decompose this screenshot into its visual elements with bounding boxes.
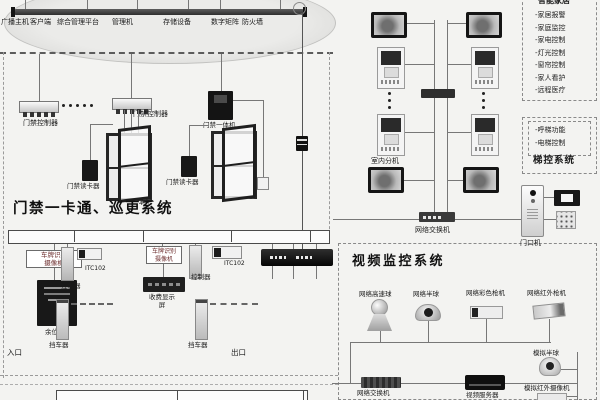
color-box-camera [470, 306, 503, 319]
ticket-controller-device [61, 247, 74, 281]
bus-label-management-platform: 综合管理平台 [57, 18, 99, 26]
bus-label-storage: 存储设备 [163, 18, 191, 26]
connector-line [405, 64, 434, 65]
access-controller-device [19, 101, 59, 113]
card-reader-device [82, 160, 98, 181]
bus-label-broadcast-host: 广播主机 [1, 18, 29, 26]
door-station-label: 门口机 [520, 239, 541, 247]
video-server-label: 视频服务器 [466, 392, 499, 399]
bus-loop-connector [293, 2, 306, 15]
bus-drop-line [25, 0, 26, 9]
indoor-monitor [368, 167, 404, 193]
video-section-title: 视频监控系统 [352, 255, 445, 270]
intercom-module-device [554, 190, 580, 206]
elevator-item: 呼梯功能 [535, 125, 566, 135]
camera-model-label: ITC102 [224, 261, 245, 268]
connector-line [90, 124, 113, 125]
analog-ir-label: 模拟红外摄像机 [524, 385, 570, 392]
smart-home-title: 智能家居 [538, 0, 570, 5]
indoor-monitor [371, 12, 407, 38]
floor-switch-device [421, 89, 455, 98]
parking-canopy-strip [8, 230, 330, 244]
connector-line [272, 266, 273, 279]
barrier-gate-device [56, 299, 69, 340]
access-door-open-sash [118, 125, 151, 203]
connector-line [448, 23, 466, 24]
indoor-monitor [463, 167, 499, 193]
elevator-item: 电梯控制 [535, 138, 566, 148]
card-reader-label: 门禁读卡器 [166, 179, 199, 186]
camera-label-ir-box: 网络红外枪机 [527, 290, 566, 297]
barrier-arm [71, 303, 113, 305]
camera-label-mini-dome: 网络半球 [413, 291, 439, 298]
camera-model-label: ITC102 [85, 266, 106, 273]
section-divider [0, 375, 338, 376]
trunk-junction-node [296, 136, 308, 151]
bottom-strip [56, 390, 308, 400]
indoor-videophone [377, 47, 405, 89]
ellipsis-dots [482, 92, 485, 109]
barrier-arm [210, 303, 258, 305]
connector-line [577, 352, 578, 400]
connector-line [448, 180, 463, 181]
smart-home-item: 家人看护 [535, 73, 566, 83]
bus-drop-line [137, 0, 138, 9]
fee-display-device [143, 277, 185, 292]
connector-line [544, 197, 554, 198]
bus-end-cap-left [11, 7, 15, 17]
smart-home-item: 家庭监控 [535, 23, 566, 33]
speed-dome-camera [371, 299, 388, 316]
camera-bus-line [350, 342, 551, 343]
connector-line [293, 266, 294, 279]
section-divider [0, 384, 338, 385]
bus-drop-line [220, 0, 221, 9]
network-switch-label: 网络交换机 [415, 226, 450, 234]
connector-line [407, 23, 434, 24]
connector-line [39, 54, 40, 101]
smart-home-item: 远程医疗 [535, 85, 566, 95]
analog-dome-camera [539, 357, 561, 376]
access-door-open-sash [222, 124, 256, 202]
switch-ports [423, 216, 441, 219]
indoor-videophone [471, 114, 499, 156]
plate-camera-label-line1: 车牌识别 [147, 248, 181, 255]
connector-line [131, 54, 132, 98]
connector-line [428, 321, 429, 342]
video-switch-label: 网络交换机 [357, 390, 390, 397]
lpr-camera-device [77, 248, 102, 260]
camera-label-color-box: 网络彩色枪机 [466, 290, 505, 297]
connector-line [350, 342, 351, 383]
lpr-camera-device [212, 246, 242, 259]
ellipsis-dots [62, 104, 93, 107]
connector-line [163, 264, 164, 277]
barrier-label: 挡车器 [188, 342, 208, 349]
connector-line [486, 319, 487, 342]
intercom-trunk-line [434, 20, 435, 219]
door-station-device [521, 185, 544, 237]
diagram-canvas: 广播主机 客户端 综合管理平台 管理机 存储设备 数字矩阵 防火墙 智能家居 家… [0, 0, 600, 400]
section-divider [3, 52, 4, 378]
main-trunk-line [302, 13, 303, 251]
indoor-videophone [377, 114, 405, 156]
indoor-videophone [471, 47, 499, 89]
system-bus-bar [13, 9, 305, 15]
connector-line [189, 125, 209, 126]
mini-dome-camera [415, 304, 441, 321]
smart-home-item: 窗帘控制 [535, 60, 566, 70]
smart-home-item: 家居报警 [535, 10, 566, 20]
core-switch-device [261, 249, 333, 266]
connector-line [233, 100, 264, 101]
video-switch-device [361, 377, 401, 388]
bus-drop-line [280, 0, 281, 9]
connector-line [448, 64, 471, 65]
analog-dome-label: 模拟半球 [533, 350, 559, 357]
ellipsis-dots [388, 92, 391, 109]
plate-camera-label-box: 车牌识别 摄像机 [146, 246, 182, 264]
connector-line [221, 54, 222, 91]
access-section-title: 门禁一卡通、巡更系统 [13, 201, 173, 218]
connector-line [561, 369, 577, 370]
bus-label-client: 客户端 [30, 18, 51, 26]
barrier-gate-device [195, 299, 208, 340]
analog-ir-camera [537, 393, 567, 400]
connector-line [404, 180, 434, 181]
bus-label-firewall: 防火墙 [242, 18, 263, 26]
controller-label: 控制器 [61, 283, 81, 290]
connector-line [549, 319, 550, 342]
indoor-monitor [466, 12, 502, 38]
connector-line [405, 132, 434, 133]
bus-drop-line [87, 0, 88, 9]
video-server-device [465, 375, 505, 390]
elevator-title: 梯控系统 [533, 156, 575, 167]
connector-line [263, 100, 264, 177]
indoor-extension-label: 室内分机 [371, 157, 399, 165]
bus-drop-line [188, 0, 189, 9]
barrier-label: 挡车器 [49, 342, 69, 349]
camera-label-speed-dome: 网络高速球 [359, 291, 392, 298]
exit-button-device [257, 177, 269, 190]
access-controller-label: 门禁控制器 [23, 119, 58, 127]
smart-home-item: 灯光控制 [535, 48, 566, 58]
exit-label: 出口 [231, 349, 246, 358]
access-allinone-device [208, 91, 233, 120]
access-controller-device [112, 98, 152, 110]
connector-line [380, 331, 381, 342]
plate-camera-label-line2: 摄像机 [147, 256, 181, 263]
connector-line [567, 396, 577, 397]
fee-display-label: 收费显示屏 [147, 294, 177, 310]
connector-line [189, 125, 190, 156]
controller-label: 控制器 [191, 274, 211, 281]
section-divider [329, 52, 330, 244]
connector-line [544, 219, 556, 220]
bus-label-digital-matrix: 数字矩阵 [211, 18, 239, 26]
connector-line [90, 124, 91, 160]
intercom-trunk-line [447, 20, 448, 219]
connector-line [316, 266, 317, 279]
card-reader-device [181, 156, 197, 177]
section-divider [0, 52, 333, 54]
bus-label-manager: 管理机 [112, 18, 133, 26]
connector-line [54, 268, 55, 280]
connector-line [448, 132, 471, 133]
smart-home-item: 家电控制 [535, 35, 566, 45]
card-reader-label: 门禁读卡器 [67, 183, 100, 190]
entrance-label: 入口 [7, 349, 22, 358]
keypad-device [556, 211, 576, 229]
